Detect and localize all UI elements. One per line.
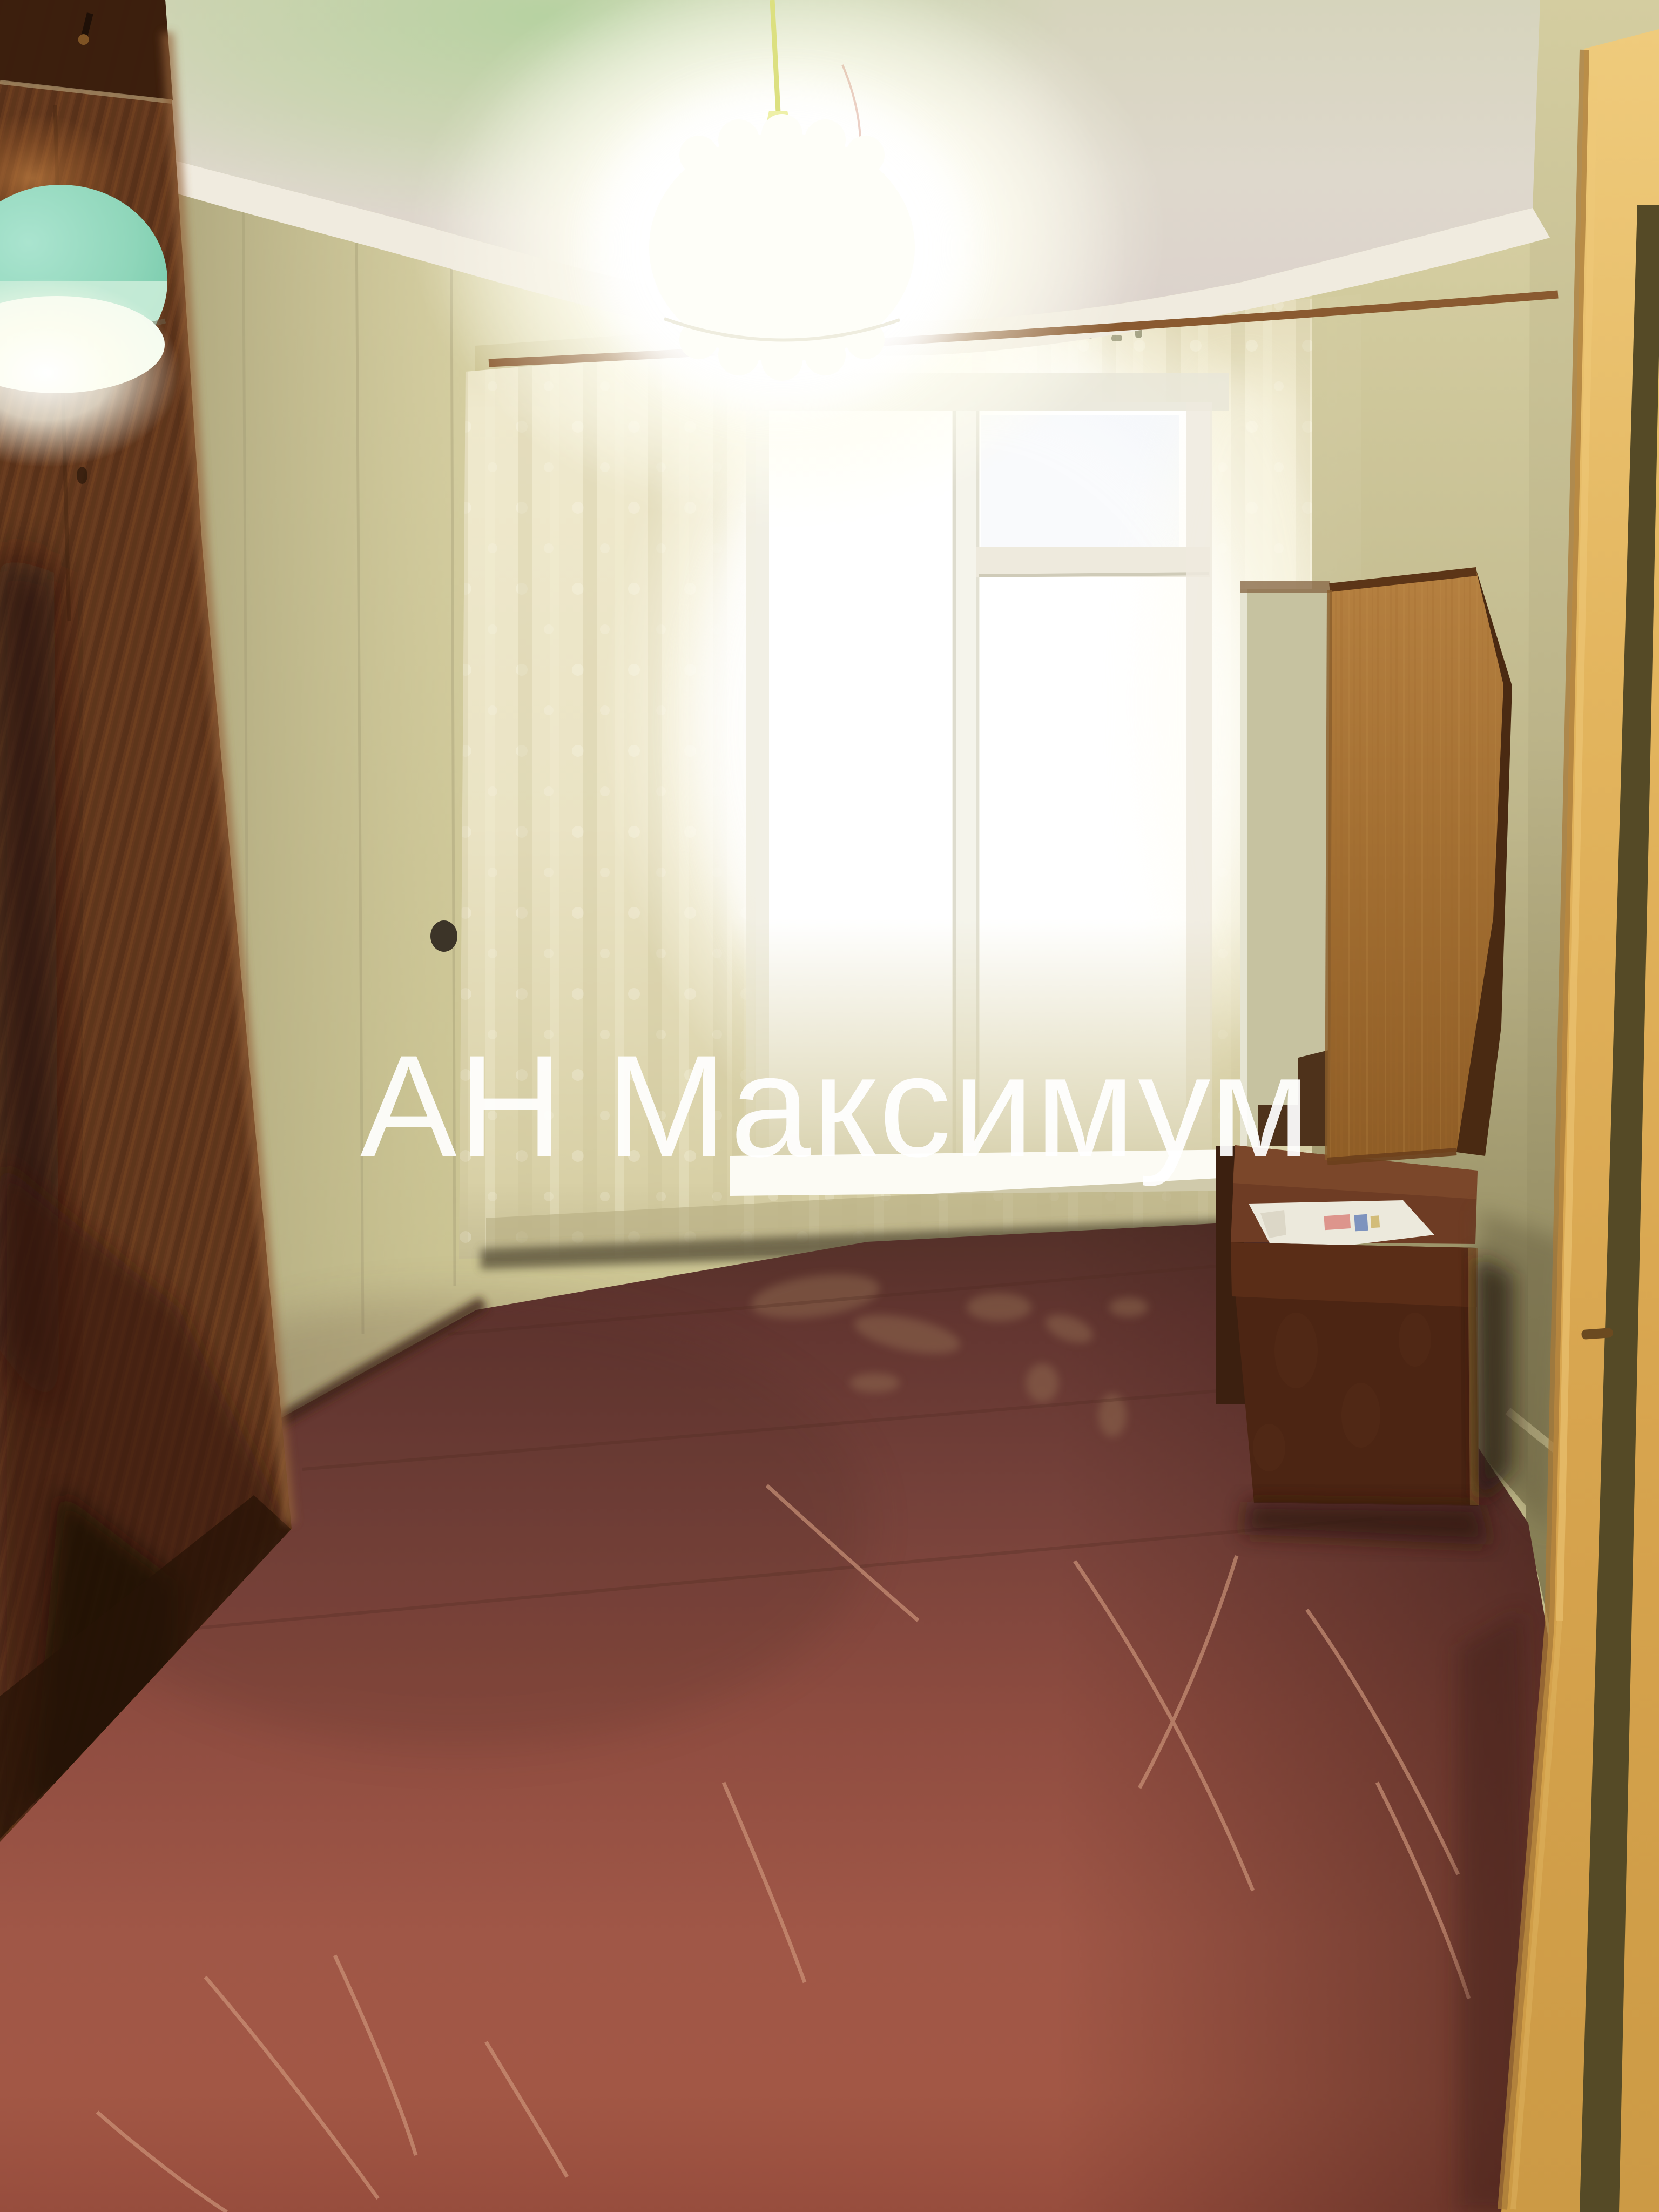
svg-text:АН Максимум: АН Максимум — [360, 1025, 1312, 1188]
